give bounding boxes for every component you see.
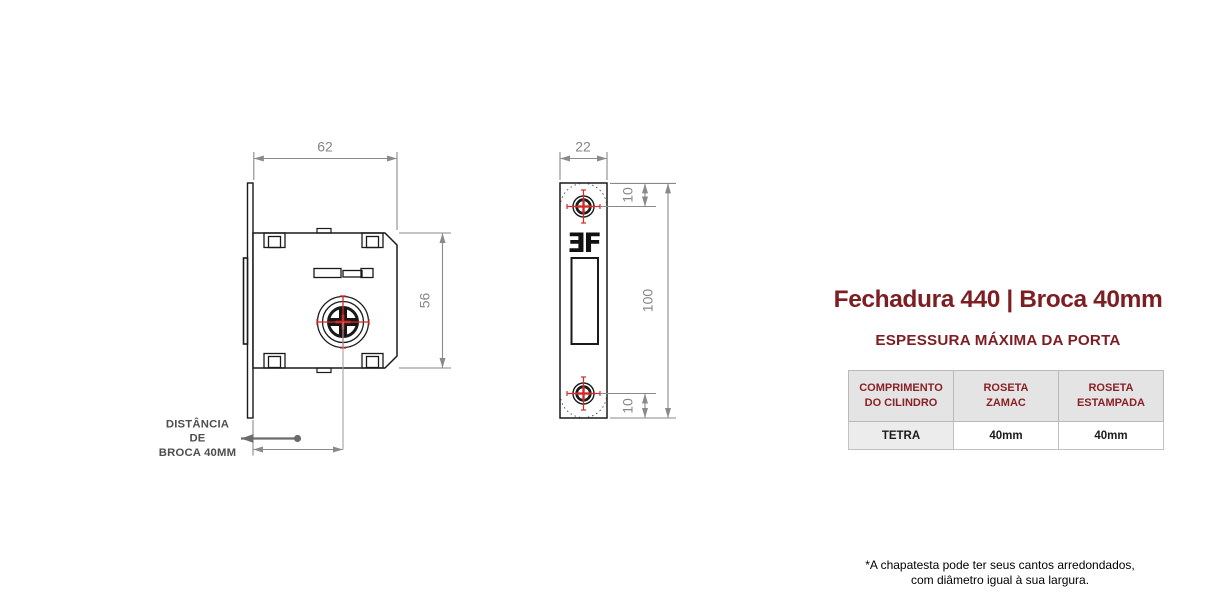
footnote: *A chapatesta pode ter seus cantos arred… [810,558,1190,588]
drill-distance-label-line1: DISTÂNCIA [166,418,229,431]
drill-leader-dot [294,435,301,442]
side-view [244,183,398,418]
faceplate-side [248,183,254,418]
drill-distance-label-line2: DE [189,433,205,445]
cell-cilindro-tetra: TETRA [849,422,954,450]
brand-logo: ƎF [567,228,600,259]
latch-bolt-side [244,258,248,344]
header-roseta-estampada: ROSETA ESTAMPADA [1059,371,1164,422]
dim-height-56: 56 [417,293,433,309]
cell-roseta-estampada-value: 40mm [1059,422,1164,450]
page-subtitle: ESPESSURA MÁXIMA DA PORTA [818,332,1178,349]
dim-width-62: 62 [317,139,333,155]
dim-hole-bottom-10: 10 [620,398,636,414]
dim-height-100: 100 [640,289,656,313]
header-comprimento-cilindro: COMPRIMENTO DO CILINDRO [849,371,954,422]
lock-body-outline [253,233,397,368]
drill-distance-label-line3: BROCA 40MM [159,447,237,459]
dim-hole-top-10: 10 [620,187,636,203]
footnote-line1: *A chapatesta pode ter seus cantos arred… [810,558,1190,573]
spec-table-header-row: COMPRIMENTO DO CILINDRO ROSETA ZAMAC ROS… [849,371,1164,422]
spec-table: COMPRIMENTO DO CILINDRO ROSETA ZAMAC ROS… [848,370,1164,450]
cell-roseta-zamac-value: 40mm [954,422,1059,450]
spec-sheet: 62 56 DISTÂNCIA DE BROCA 40MM ƎF [0,0,1220,600]
footnote-line2: com diâmetro igual à sua largura. [810,573,1190,588]
dim-width-22: 22 [575,139,591,155]
spec-table-data-row: TETRA 40mm 40mm [849,422,1164,450]
page-title: Fechadura 440 | Broca 40mm [818,286,1178,314]
header-roseta-zamac: ROSETA ZAMAC [954,371,1059,422]
